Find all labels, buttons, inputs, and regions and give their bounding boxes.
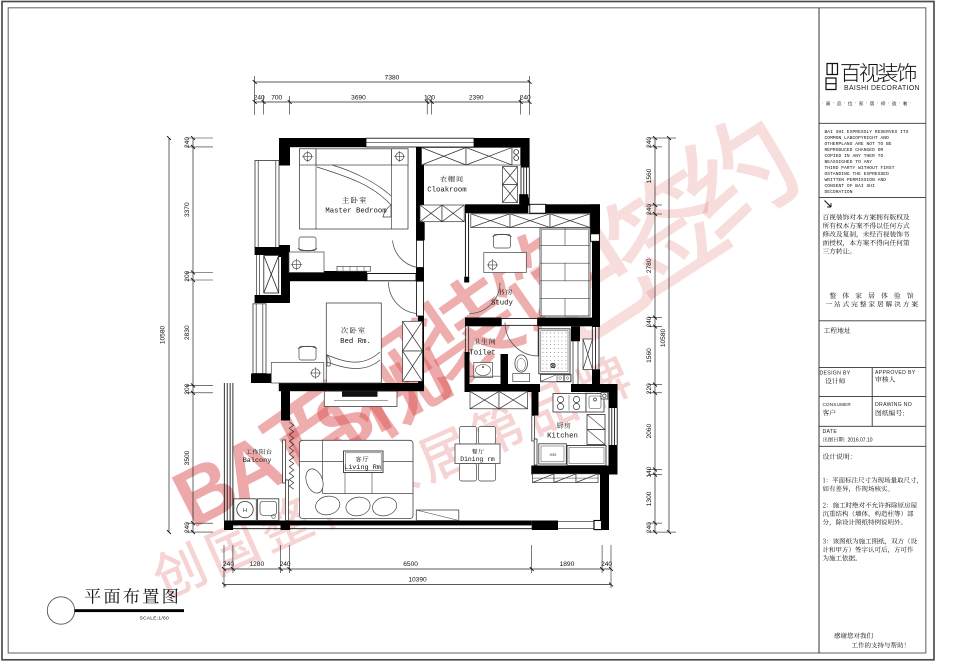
svg-text:1890: 1890 (560, 561, 575, 568)
svg-text:DRAWING NO: DRAWING NO (875, 402, 912, 408)
svg-text:120: 120 (424, 94, 435, 101)
svg-text:2060: 2060 (646, 424, 653, 439)
svg-text:Living Rm: Living Rm (344, 464, 381, 472)
svg-text:H: H (243, 508, 247, 514)
svg-text:BEASSIGHED TO ANY: BEASSIGHED TO ANY (825, 159, 873, 165)
svg-text:240: 240 (646, 137, 653, 148)
svg-text:Balcony: Balcony (243, 457, 272, 465)
svg-text:COMMON LABCOPYRIGHT AND: COMMON LABCOPYRIGHT AND (825, 135, 890, 141)
svg-text:3500: 3500 (184, 450, 191, 465)
svg-text:Toilet: Toilet (469, 350, 495, 358)
svg-text:Cloakroom: Cloakroom (427, 187, 466, 195)
svg-text:700: 700 (271, 94, 282, 101)
svg-text:COPIED IN ANY THER TO: COPIED IN ANY THER TO (825, 153, 884, 159)
svg-text:240: 240 (280, 561, 291, 568)
svg-text:240: 240 (184, 137, 191, 148)
svg-text:DECORATION: DECORATION (825, 189, 853, 195)
svg-text:3370: 3370 (184, 202, 191, 217)
svg-text:Study: Study (491, 300, 514, 308)
svg-text:7380: 7380 (385, 75, 400, 82)
svg-text:240: 240 (254, 94, 265, 101)
svg-text:DATE: DATE (823, 429, 838, 435)
svg-text:200: 200 (184, 383, 191, 394)
svg-text:CONSENT OF BAI SHI: CONSENT OF BAI SHI (825, 183, 876, 189)
svg-text:200: 200 (184, 270, 191, 281)
svg-text:140: 140 (646, 466, 653, 477)
svg-text:BAISHI DECORATION: BAISHI DECORATION (844, 85, 920, 92)
svg-text:BAI SHI EXPRESSLY RESERVES ITS: BAI SHI EXPRESSLY RESERVES ITS (825, 129, 909, 135)
svg-text:220: 220 (646, 383, 653, 394)
svg-text:1300: 1300 (646, 491, 653, 506)
svg-text:240: 240 (646, 204, 653, 215)
svg-text:240: 240 (646, 316, 653, 327)
svg-text:REPRODUCED CHANGED OR: REPRODUCED CHANGED OR (825, 147, 884, 153)
svg-text:2016.07.10: 2016.07.10 (848, 437, 873, 443)
svg-text:240: 240 (223, 561, 234, 568)
svg-text:2780: 2780 (646, 258, 653, 273)
svg-text:Kitchen: Kitchen (547, 433, 578, 441)
svg-text:OTHERPLANS ARE NOT TO BE: OTHERPLANS ARE NOT TO BE (825, 141, 892, 147)
svg-text:.939: .939 (549, 452, 558, 457)
svg-text:2830: 2830 (184, 325, 191, 340)
svg-text:Dining rm: Dining rm (460, 456, 495, 463)
svg-text:APPROVED BY: APPROVED BY (875, 370, 916, 376)
svg-text:CONSUMER: CONSUMER (823, 402, 852, 407)
svg-text:Bed Rm.: Bed Rm. (340, 338, 371, 346)
svg-text:10580: 10580 (660, 329, 667, 348)
svg-text:1560: 1560 (646, 348, 653, 363)
svg-text:240: 240 (184, 522, 191, 533)
svg-text:OSTANDING THE EXPRESSED: OSTANDING THE EXPRESSED (825, 171, 890, 177)
svg-text:DESIGN BY: DESIGN BY (820, 370, 851, 376)
svg-text:1280: 1280 (249, 561, 264, 568)
svg-text:6500: 6500 (403, 561, 418, 568)
svg-text:2390: 2390 (469, 94, 484, 101)
svg-text:WRITTEN PERMISSION AND: WRITTEN PERMISSION AND (825, 177, 887, 183)
svg-text:THIRD PARTY WITHOUT FIRST: THIRD PARTY WITHOUT FIRST (825, 165, 895, 171)
svg-text:10390: 10390 (408, 577, 427, 584)
svg-text:240: 240 (646, 522, 653, 533)
svg-text:10580: 10580 (160, 326, 167, 345)
svg-text:1560: 1560 (646, 168, 653, 183)
svg-text:240: 240 (601, 561, 612, 568)
svg-text:Master Bedroom: Master Bedroom (325, 208, 386, 216)
svg-text:SCALE:1/60: SCALE:1/60 (140, 615, 169, 621)
svg-text:240: 240 (520, 94, 531, 101)
svg-text:3690: 3690 (351, 94, 366, 101)
